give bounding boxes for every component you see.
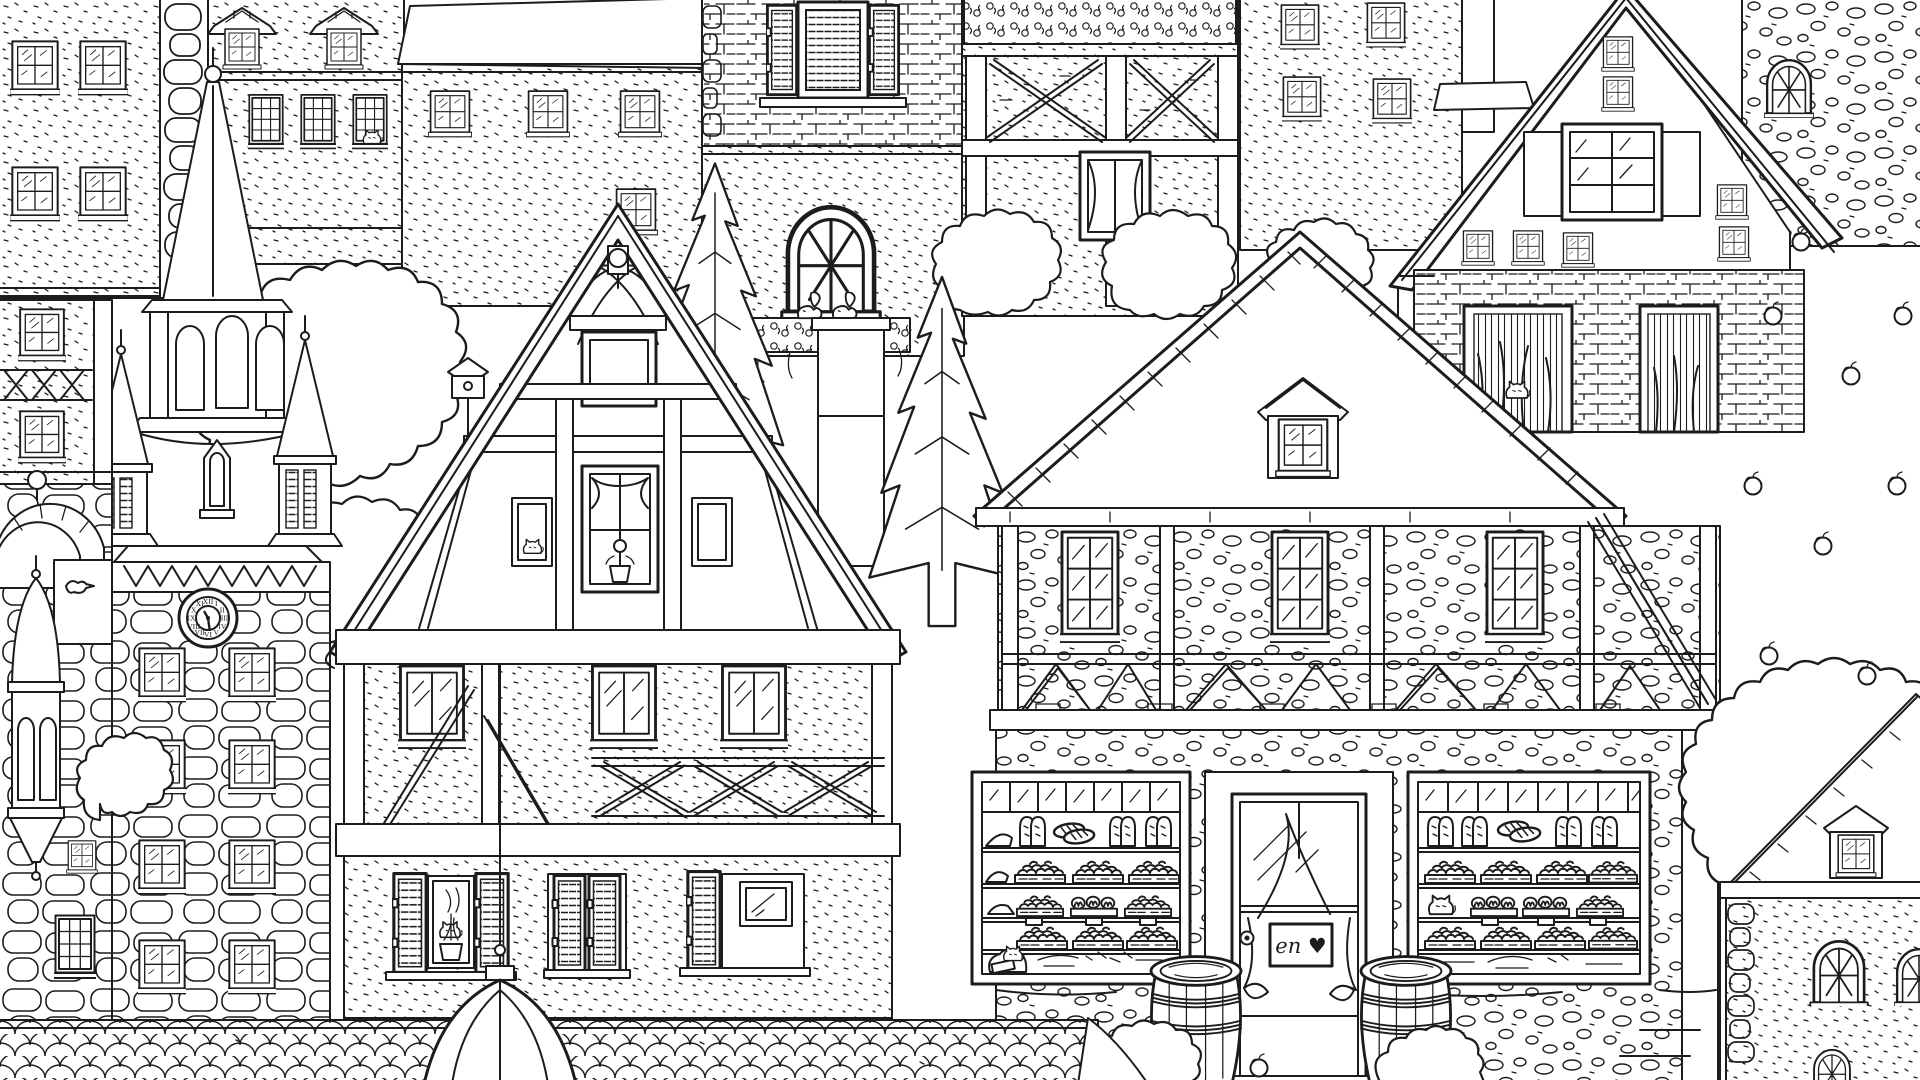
cat-small-window	[512, 498, 552, 566]
illustration-canvas: XIIIIIIIIIVVVIVIIVIIIIXXXI	[0, 0, 1920, 1080]
window-icon	[10, 41, 61, 94]
window-icon	[428, 91, 471, 137]
casement-window	[589, 666, 660, 748]
window-icon	[18, 411, 67, 462]
stucco-apartment-left	[0, 0, 166, 298]
window-icon	[526, 91, 569, 137]
svg-text:IV: IV	[218, 622, 226, 631]
arched-window	[1810, 941, 1867, 1007]
tower-window	[137, 648, 188, 701]
arched-window	[1764, 60, 1814, 118]
sash-window	[299, 95, 337, 149]
window-icon	[78, 41, 129, 94]
louvered-shuttered-window	[760, 2, 906, 107]
tower-window	[227, 940, 278, 993]
window-icon	[18, 309, 67, 360]
bakery-upper-window	[1268, 532, 1332, 642]
bakery-upper-floor	[998, 518, 1720, 712]
sash-window	[247, 95, 285, 149]
window-icon	[67, 841, 98, 873]
window-icon	[1281, 77, 1323, 121]
shingle-roof-house	[398, 0, 708, 306]
window-icon	[78, 167, 129, 220]
tall-window	[53, 916, 97, 979]
plant-opening	[1640, 306, 1718, 432]
arched-louver	[176, 316, 284, 410]
window-icon	[1279, 5, 1321, 49]
tower-window	[227, 840, 278, 893]
door-step	[1222, 1076, 1376, 1080]
window-icon	[1602, 77, 1635, 111]
closed-shuttered-window	[544, 874, 630, 978]
tower-window	[137, 940, 188, 993]
arched-window	[782, 207, 880, 321]
plank-shuttered-window	[1524, 124, 1700, 220]
shuttered-window-plant-cat	[386, 874, 516, 980]
old-town-line-art: XIIIIIIIIIVVVIVIIVIIIIXXXI	[0, 0, 1920, 1080]
curtain-window	[582, 466, 658, 592]
bakery-display-window-left	[972, 772, 1190, 984]
tower-window	[227, 648, 278, 701]
casement-window	[397, 666, 468, 748]
window-icon	[1365, 3, 1407, 47]
svg-text:XI: XI	[196, 599, 204, 608]
stucco-house-small-windows	[1240, 0, 1462, 250]
window-icon	[618, 91, 661, 137]
open-shutter-wood-panel-window	[680, 872, 810, 976]
half-timbered-annex-left	[0, 300, 112, 486]
window-icon	[1602, 37, 1635, 71]
clock: XIIIIIIIIIVVVIVIIVIIIIXXXI	[179, 589, 237, 647]
window-icon	[1718, 227, 1751, 261]
door-sign-text: en ♥	[1275, 934, 1326, 958]
window-icon	[1371, 79, 1413, 123]
svg-text:XII: XII	[203, 597, 214, 606]
window-icon	[10, 167, 61, 220]
bakery-upper-window	[1483, 532, 1547, 642]
window-icon	[1512, 231, 1545, 265]
svg-text:V: V	[214, 628, 220, 637]
bakery-upper-window	[1058, 532, 1122, 642]
svg-text:IX: IX	[188, 614, 196, 623]
door-sign: en ♥	[1270, 924, 1332, 966]
bakery-display-window-right	[1408, 772, 1650, 984]
tower-window	[137, 840, 188, 893]
tower-window	[227, 740, 278, 793]
svg-text:VIII: VIII	[187, 622, 200, 631]
window-icon	[1462, 231, 1495, 265]
casement-window	[719, 666, 790, 748]
planked-wall-bird	[54, 560, 112, 644]
window-icon	[1716, 185, 1749, 219]
svg-text:VI: VI	[204, 630, 212, 639]
window-icon	[1562, 233, 1595, 267]
